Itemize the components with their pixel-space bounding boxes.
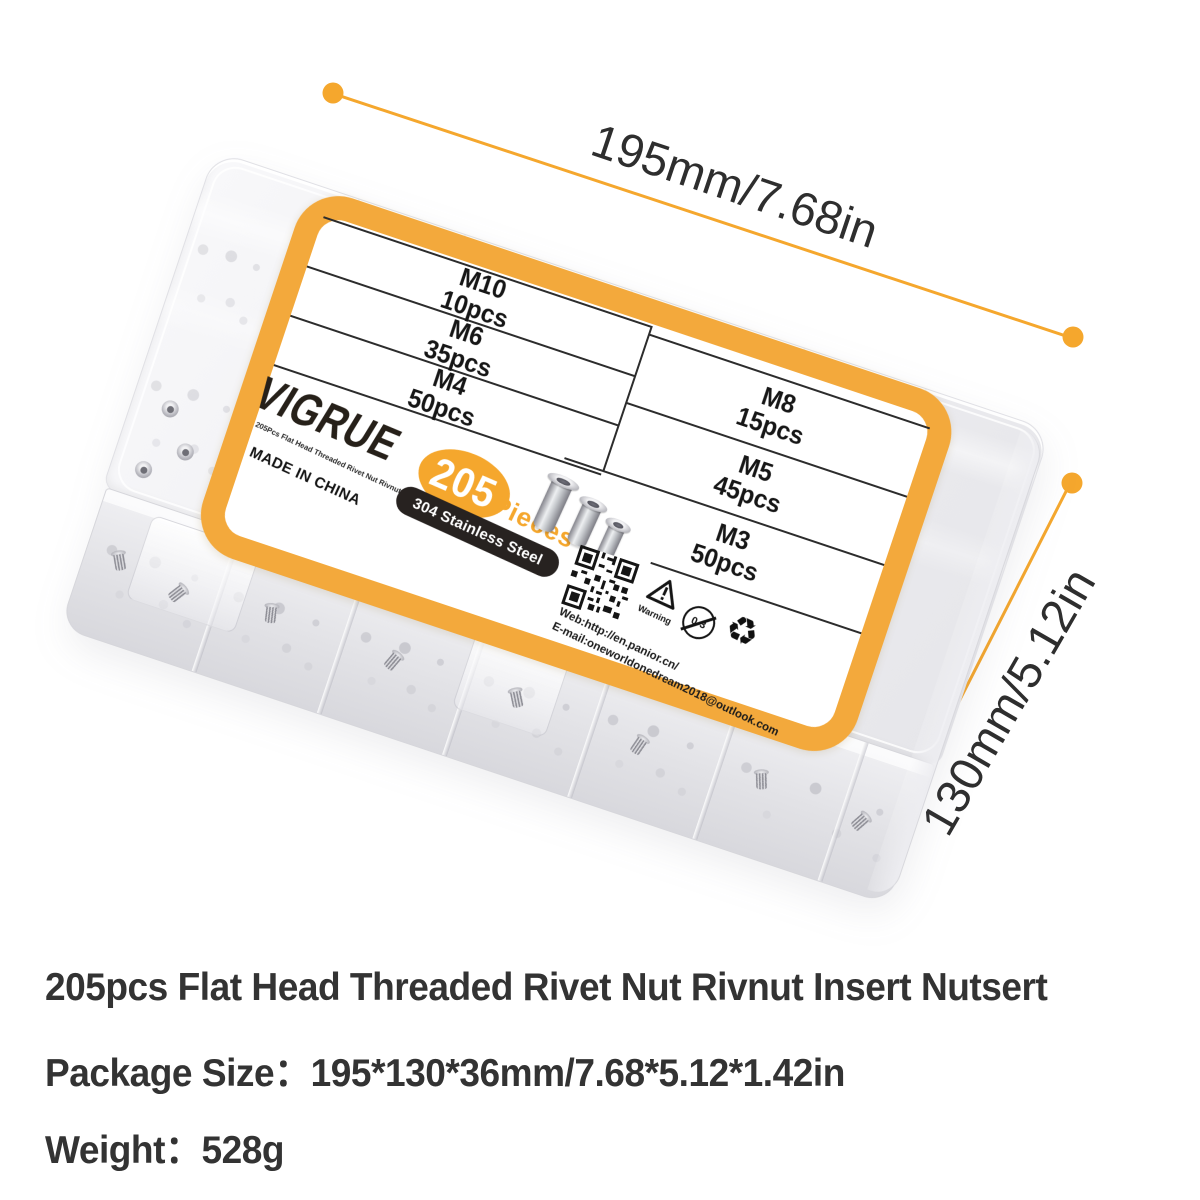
warning-triangle-glyph: [645, 573, 686, 612]
width-dimension-endpoint-right: [1063, 327, 1084, 348]
weight-text: Weight：528g: [45, 1119, 284, 1175]
age-text: 0-3: [689, 614, 708, 631]
width-dimension-endpoint-left: [323, 83, 344, 104]
recycle-icon: ♻: [720, 607, 766, 654]
rivet-nut-decor: [754, 769, 770, 793]
product-image-canvas: 195mm/7.68in 130mm/5.12in: [0, 0, 1200, 1200]
age-restriction-icon: 0-3: [677, 601, 721, 645]
package-size-text: Package Size：195*130*36mm/7.68*5.12*1.42…: [45, 1042, 845, 1098]
width-dimension-label: 195mm/7.68in: [546, 99, 924, 272]
recycle-glyph: ♻: [718, 605, 766, 658]
rivet-nut-decor: [262, 602, 280, 628]
depth-dimension-endpoint-top: [1062, 473, 1083, 494]
product-title-text: 205pcs Flat Head Threaded Rivet Nut Rivn…: [45, 966, 1047, 1010]
